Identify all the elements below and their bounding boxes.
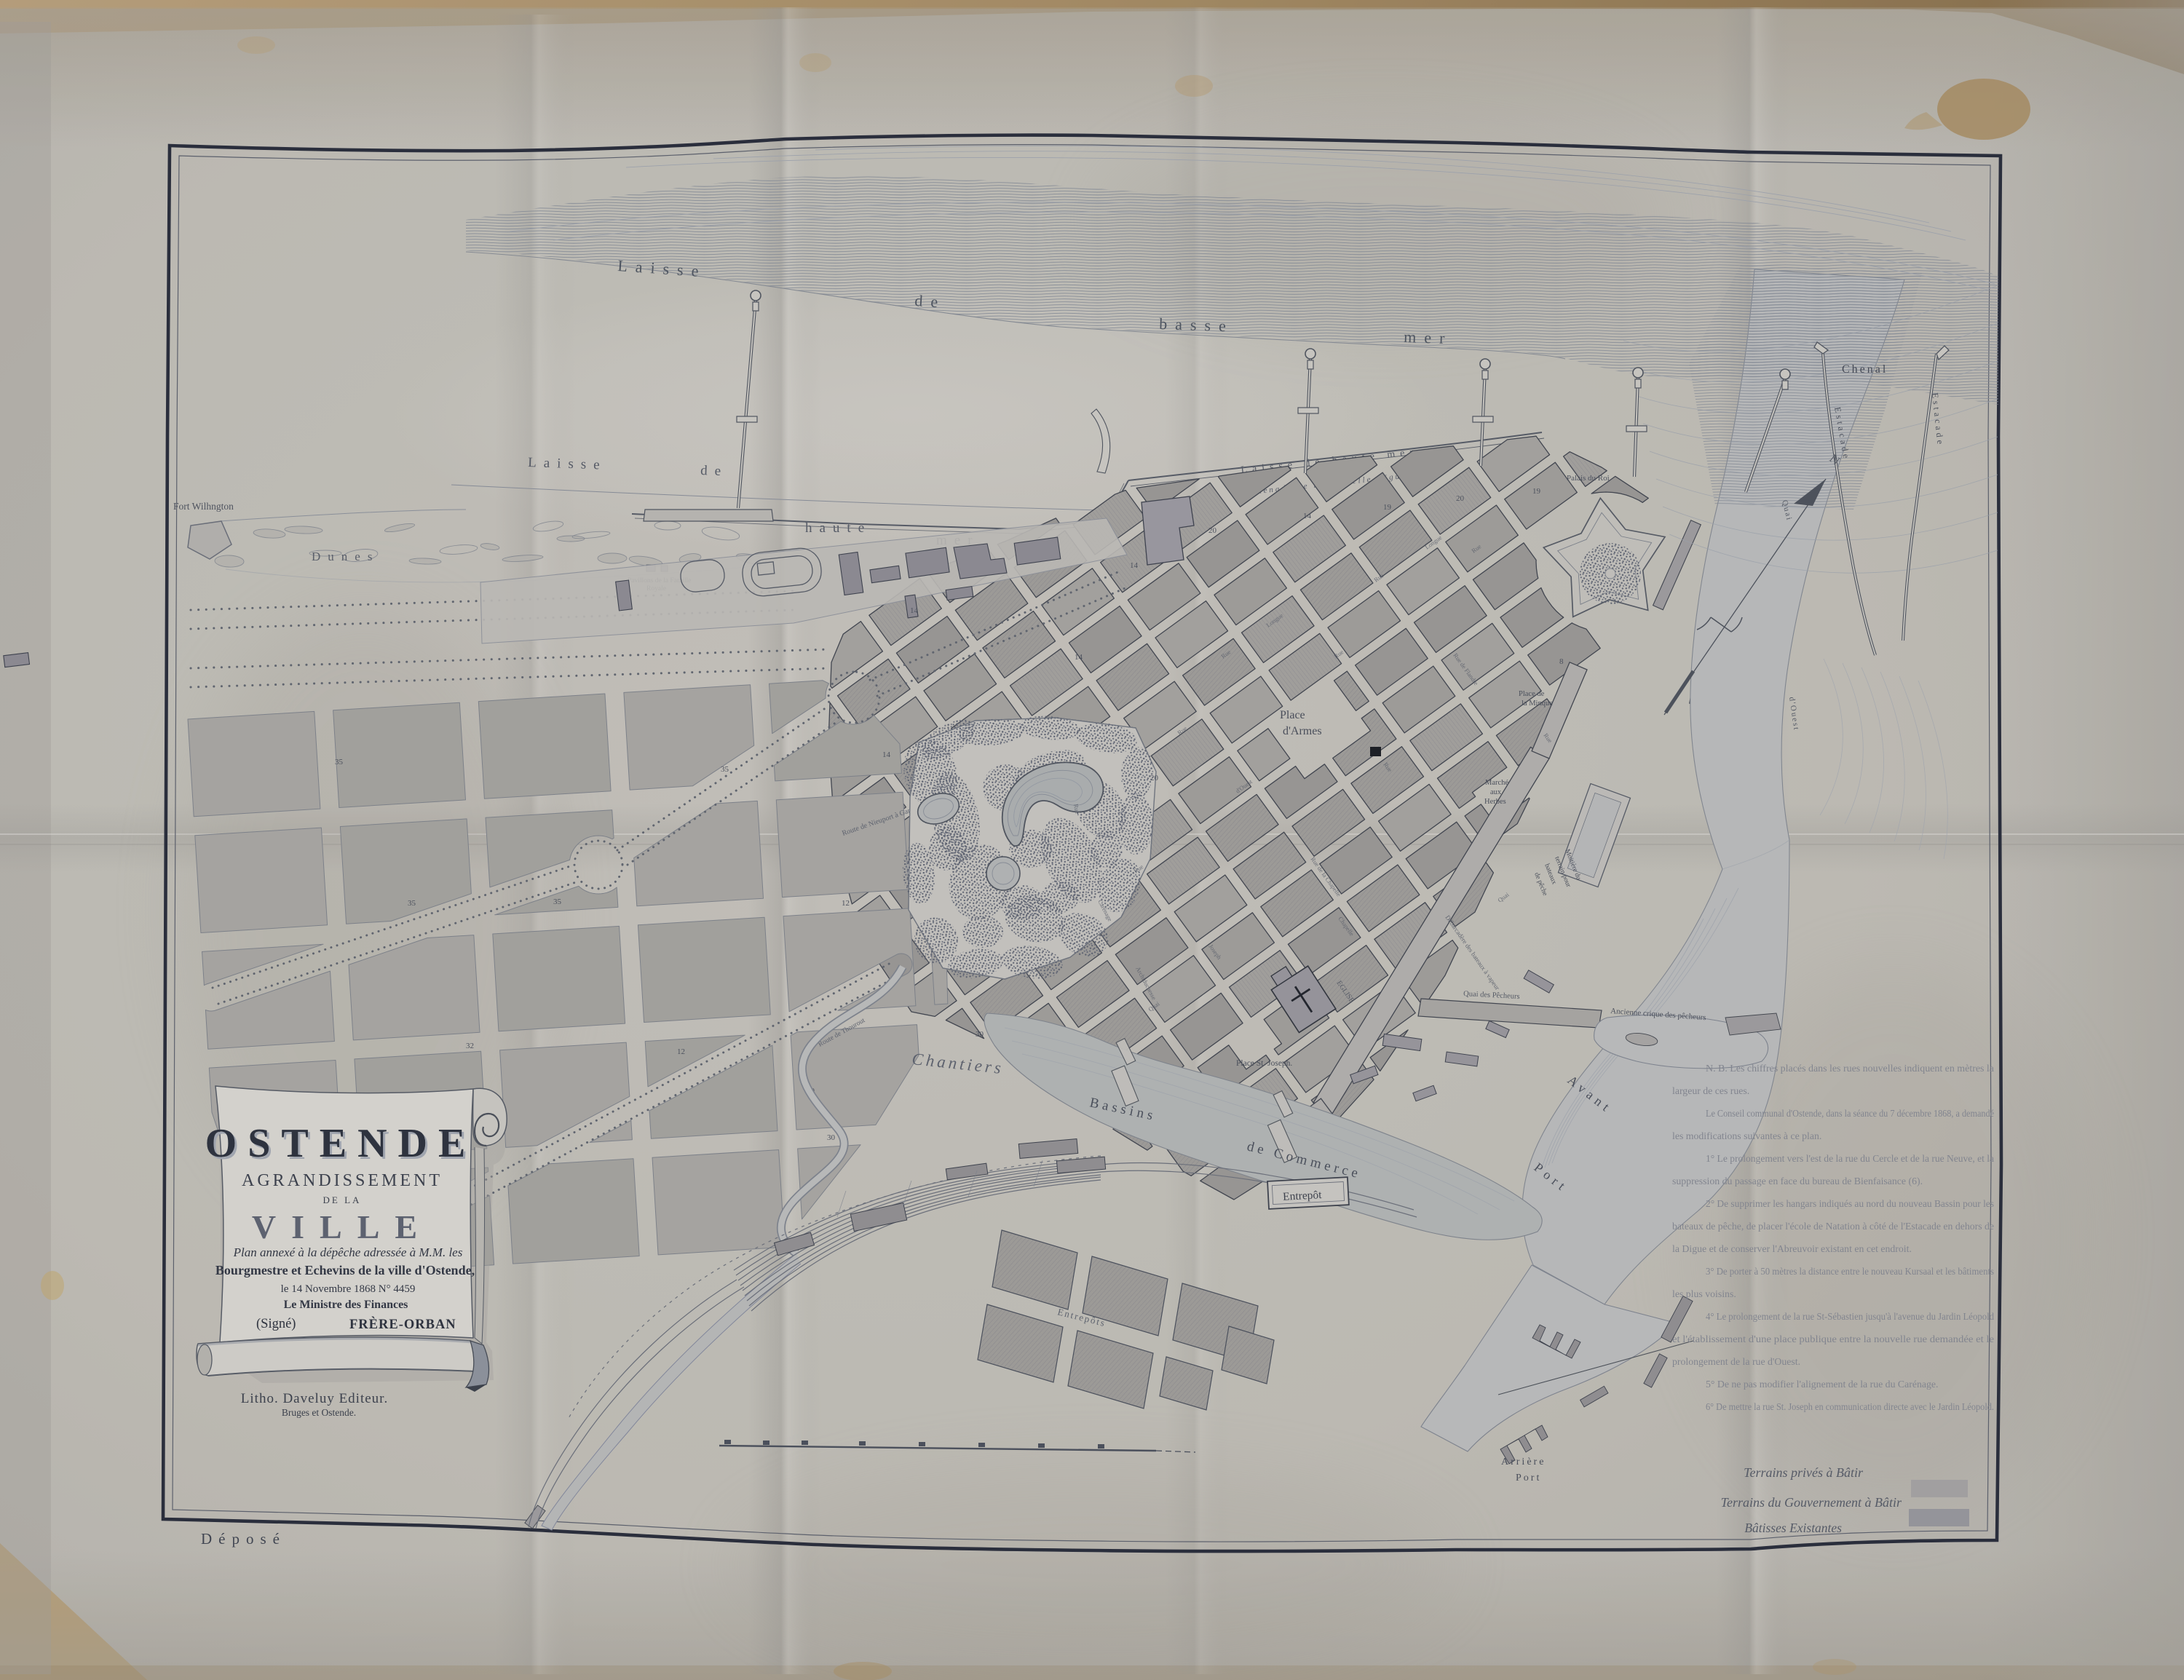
svg-text:Herbes: Herbes — [1484, 798, 1506, 806]
svg-text:Port: Port — [1516, 1473, 1541, 1483]
svg-text:19: 19 — [1383, 503, 1392, 512]
svg-text:de: de — [700, 463, 729, 479]
svg-text:Chenal: Chenal — [1842, 363, 1888, 376]
svg-text:la Minque: la Minque — [1522, 700, 1553, 708]
svg-text:Fort Wilhngton: Fort Wilhngton — [173, 501, 234, 512]
svg-text:les modifications suivantes à: les modifications suivantes à ce plan. — [1672, 1130, 1821, 1141]
svg-text:Le Ministre des Finances: Le Ministre des Finances — [284, 1299, 408, 1311]
svg-text:Terrains du Gouvernement à Bât: Terrains du Gouvernement à Bâtir — [1721, 1495, 1902, 1510]
svg-text:Le Conseil communal d'Ostende,: Le Conseil communal d'Ostende, dans la s… — [1706, 1108, 1994, 1119]
svg-text:14: 14 — [910, 606, 919, 615]
svg-text:35: 35 — [408, 899, 416, 908]
svg-text:FRÈRE-ORBAN: FRÈRE-ORBAN — [349, 1316, 456, 1332]
svg-text:Litho. Daveluy Editeur.: Litho. Daveluy Editeur. — [241, 1391, 388, 1406]
svg-text:8: 8 — [1559, 657, 1564, 666]
svg-text:aux: aux — [1490, 788, 1502, 796]
svg-text:Place St. Joseph.: Place St. Joseph. — [1236, 1059, 1292, 1068]
svg-text:et l'établissement d'une place: et l'établissement d'une place publique … — [1672, 1334, 1994, 1344]
svg-text:Bâtisses Existantes: Bâtisses Existantes — [1744, 1521, 1842, 1535]
svg-text:mer: mer — [1404, 328, 1453, 347]
svg-text:d'Armes: d'Armes — [1283, 725, 1322, 737]
svg-text:1° Le prolongement vers l'est: 1° Le prolongement vers l'est de la rue … — [1706, 1153, 1994, 1164]
svg-text:la Digue et de conserver l'Abr: la Digue et de conserver l'Abreuvoir exi… — [1672, 1243, 1912, 1254]
svg-text:Place: Place — [1280, 709, 1305, 721]
svg-text:VILLE: VILLE — [252, 1208, 432, 1245]
svg-text:14: 14 — [1075, 653, 1083, 662]
svg-text:Place de: Place de — [1519, 690, 1545, 698]
svg-text:le 14 Novembre 1868 N° 4459: le 14 Novembre 1868 N° 4459 — [281, 1283, 416, 1295]
svg-text:32: 32 — [466, 1042, 474, 1050]
svg-text:Marché: Marché — [1485, 779, 1508, 787]
svg-text:12: 12 — [677, 1047, 685, 1056]
svg-text:N. B. Les chiffres placés dan: N. B. Les chiffres placés dans les rues … — [1706, 1063, 1994, 1074]
svg-text:Terrains privés à Bâtir: Terrains privés à Bâtir — [1744, 1465, 1864, 1480]
svg-text:19: 19 — [1532, 487, 1541, 496]
svg-text:DE LA: DE LA — [323, 1194, 362, 1205]
svg-text:OSTENDE: OSTENDE — [205, 1121, 477, 1166]
svg-text:30: 30 — [976, 1030, 984, 1039]
svg-text:bateaux de pêche, de placer l': bateaux de pêche, de placer l'école de N… — [1672, 1221, 1994, 1232]
svg-text:prolongement de la rue d'Ouest: prolongement de la rue d'Ouest. — [1672, 1356, 1800, 1367]
svg-text:14: 14 — [1130, 561, 1139, 570]
svg-text:4° Le prolongement de la rue: 4° Le prolongement de la rue St-Sébastie… — [1706, 1311, 1994, 1322]
svg-text:Bourgmestre et Echevins de la: Bourgmestre et Echevins de la ville d'Os… — [215, 1263, 475, 1277]
svg-text:les plus voisins.: les plus voisins. — [1672, 1288, 1736, 1299]
svg-text:5° De ne pas modifier l'align: 5° De ne pas modifier l'alignement de la… — [1706, 1379, 1938, 1390]
svg-text:(Signé): (Signé) — [256, 1317, 296, 1331]
svg-text:14: 14 — [882, 750, 891, 759]
svg-text:Arrière: Arrière — [1501, 1457, 1546, 1467]
svg-text:de: de — [914, 291, 946, 312]
svg-text:AGRANDISSEMENT: AGRANDISSEMENT — [242, 1171, 443, 1190]
svg-text:Laisse: Laisse — [528, 455, 607, 473]
svg-text:basse: basse — [1159, 314, 1234, 336]
svg-text:20: 20 — [1456, 494, 1465, 503]
svg-text:35: 35 — [335, 758, 344, 766]
svg-text:Bruges et Ostende.: Bruges et Ostende. — [282, 1407, 356, 1418]
svg-text:Plan annexé à la dépêche adres: Plan annexé à la dépêche adressée à M.M.… — [233, 1245, 463, 1259]
svg-text:Déposé: Déposé — [201, 1530, 286, 1548]
svg-text:14: 14 — [1303, 512, 1312, 520]
svg-text:Dunes: Dunes — [312, 550, 379, 563]
svg-text:30: 30 — [827, 1133, 836, 1142]
svg-text:2° De supprimer les hangars i: 2° De supprimer les hangars indiqués au … — [1706, 1198, 1994, 1209]
svg-text:Entrepôt: Entrepôt — [1283, 1189, 1323, 1203]
svg-text:largeur de ces rues.: largeur de ces rues. — [1672, 1085, 1749, 1096]
svg-text:12: 12 — [842, 899, 850, 908]
svg-text:35: 35 — [721, 765, 729, 774]
svg-text:suppression du passage en face: suppression du passage en face du bureau… — [1672, 1176, 1923, 1187]
svg-text:3° De porter à 50 mètres la d: 3° De porter à 50 mètres la distance ent… — [1706, 1266, 1994, 1277]
svg-text:Palais du Roi: Palais du Roi — [1567, 474, 1610, 483]
svg-text:20: 20 — [1150, 774, 1159, 782]
svg-text:20: 20 — [1208, 526, 1217, 535]
svg-text:6° De mettre la rue St. Josep: 6° De mettre la rue St. Joseph en commun… — [1706, 1401, 1994, 1412]
svg-text:35: 35 — [553, 898, 562, 906]
